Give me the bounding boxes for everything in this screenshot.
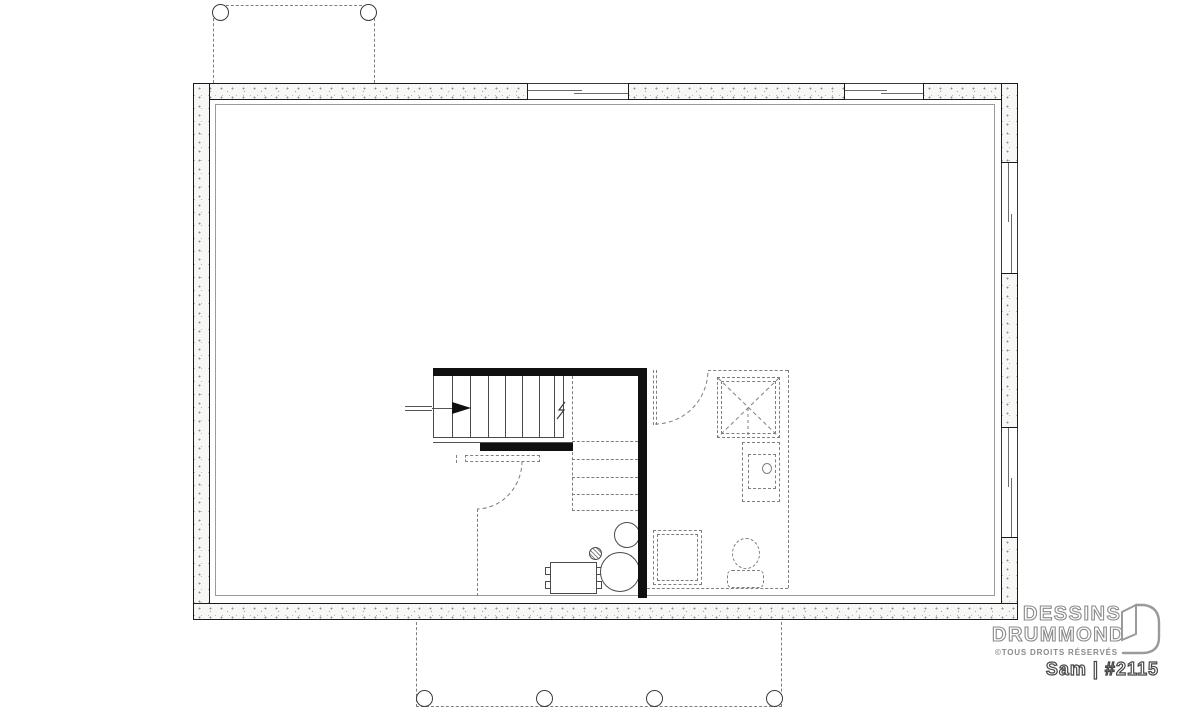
stair-direction-arrow-icon xyxy=(452,402,471,414)
plan-reference: Sam | #2115 xyxy=(1046,659,1159,680)
furnace-tab xyxy=(596,581,602,589)
water-tank xyxy=(614,522,640,548)
furnace-tab xyxy=(545,581,551,589)
porch-post xyxy=(766,690,783,707)
porch-post xyxy=(646,690,663,707)
porch-post xyxy=(536,690,553,707)
porch-post xyxy=(212,4,229,21)
understair-door-swing xyxy=(477,461,522,509)
logo-door-leaf xyxy=(1122,605,1136,640)
floor-plan: DESSINS DRUMMOND ©TOUS DROITS RÉSERVÉS S… xyxy=(0,0,1200,711)
stair-wall-under xyxy=(480,443,573,451)
brand-name-line1: DESSINS xyxy=(1023,603,1121,626)
dashed-linework xyxy=(0,0,1200,711)
brand-name-line2: DRUMMOND xyxy=(992,624,1125,647)
stair-break-line-icon xyxy=(557,402,565,419)
stair-wall-right xyxy=(638,368,647,598)
brand-logo-mark-icon xyxy=(1113,600,1165,658)
bathroom-door-swing xyxy=(655,370,708,424)
furnace xyxy=(550,562,597,594)
stair-wall-top xyxy=(433,368,647,376)
furnace-tab xyxy=(545,567,551,575)
water-heater xyxy=(600,552,640,592)
porch-post xyxy=(360,4,377,21)
porch-post xyxy=(416,690,433,707)
floor-drain xyxy=(589,547,602,560)
copyright-notice: ©TOUS DROITS RÉSERVÉS xyxy=(995,648,1118,657)
